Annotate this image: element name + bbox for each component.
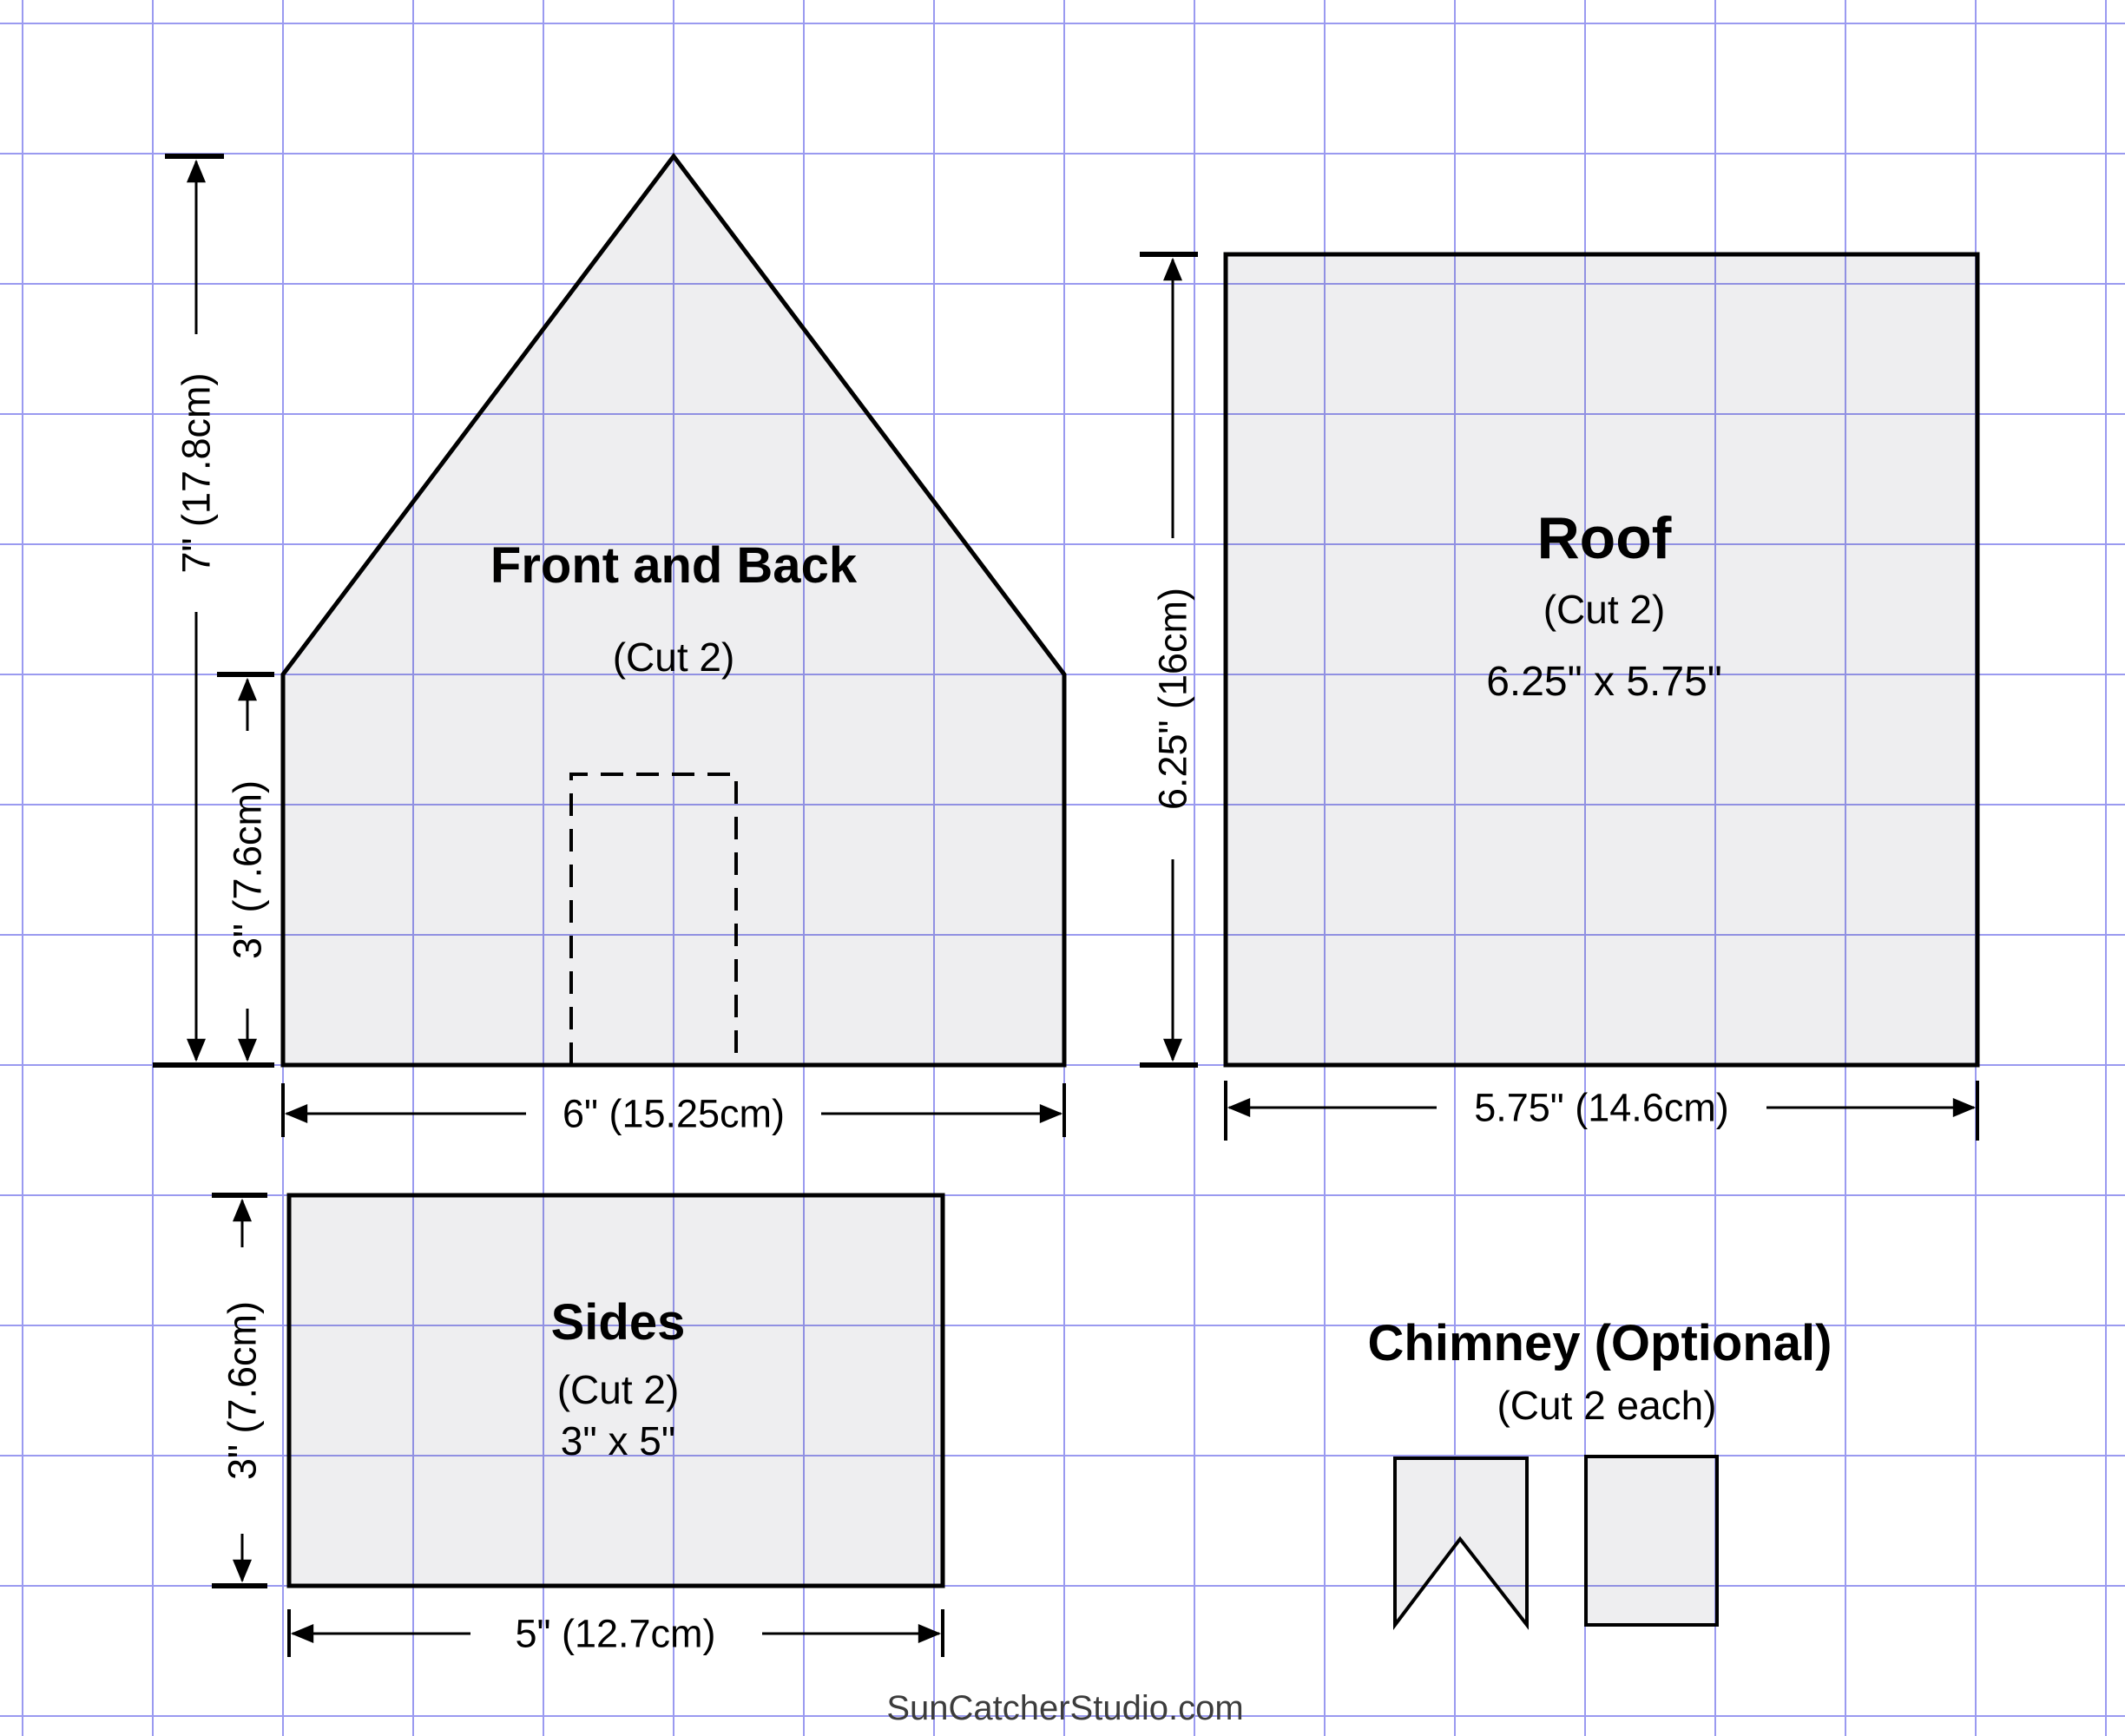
front-height-label: 7" (17.8cm)	[174, 372, 219, 573]
sides-width-dimension: 5" (12.7cm)	[289, 1609, 943, 1657]
front-back-piece-group: Front and Back (Cut 2)	[283, 156, 1064, 1065]
roof-piece-group: Roof (Cut 2) 6.25" x 5.75"	[1226, 254, 1977, 1065]
roof-width-label: 5.75" (14.6cm)	[1474, 1086, 1729, 1130]
chimney-group: Chimney (Optional) (Cut 2 each)	[1368, 1315, 1832, 1625]
front-back-title: Front and Back	[490, 537, 858, 594]
sides-title: Sides	[551, 1294, 686, 1351]
front-width-label: 6" (15.25cm)	[562, 1092, 785, 1136]
front-back-piece-shape	[283, 156, 1064, 1065]
sides-height-dimension: 3" (7.6cm)	[212, 1195, 267, 1586]
roof-size-label: 6.25" x 5.75"	[1486, 659, 1722, 705]
front-wall-height-dimension: 3" (7.6cm)	[217, 674, 274, 1060]
roof-title: Roof	[1537, 505, 1672, 571]
sides-height-label: 3" (7.6cm)	[220, 1301, 265, 1480]
roof-cut-label: (Cut 2)	[1543, 587, 1666, 632]
chimney-plain-piece-shape	[1586, 1457, 1717, 1625]
front-wall-height-label: 3" (7.6cm)	[226, 780, 270, 959]
chimney-title: Chimney (Optional)	[1368, 1315, 1832, 1371]
roof-length-label: 6.25" (16cm)	[1151, 588, 1195, 810]
sides-piece-group: Sides (Cut 2) 3" x 5"	[289, 1195, 943, 1586]
sides-width-label: 5" (12.7cm)	[515, 1612, 715, 1656]
front-back-cut-label: (Cut 2)	[613, 635, 735, 680]
roof-width-dimension: 5.75" (14.6cm)	[1226, 1081, 1977, 1141]
front-width-dimension: 6" (15.25cm)	[283, 1083, 1064, 1137]
template-diagram: Front and Back (Cut 2) Roof (Cut 2) 6.25…	[0, 0, 2125, 1736]
watermark-text: SunCatcherStudio.com	[886, 1689, 1243, 1727]
chimney-notched-piece-shape	[1395, 1458, 1527, 1625]
sides-cut-label: (Cut 2)	[557, 1367, 680, 1412]
sides-size-label: 3" x 5"	[561, 1418, 675, 1463]
roof-length-dimension: 6.25" (16cm)	[1140, 254, 1198, 1065]
chimney-cut-label: (Cut 2 each)	[1497, 1383, 1716, 1428]
